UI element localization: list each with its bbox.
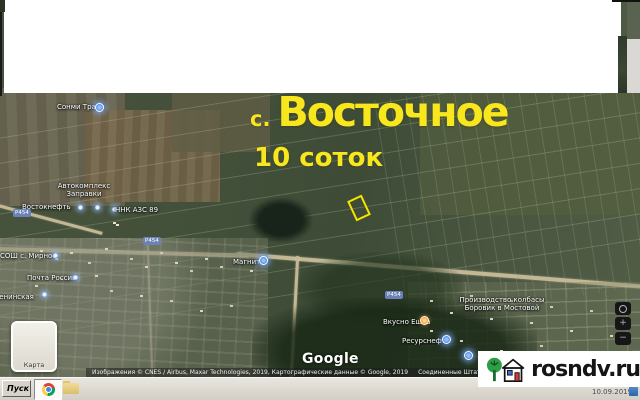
zoom-in-button[interactable]: +	[615, 317, 631, 330]
listing-title: с. Восточное	[250, 88, 508, 136]
poi-marker[interactable]	[420, 316, 429, 325]
title-text: Восточное	[277, 88, 507, 136]
title-prefix: с.	[250, 107, 270, 131]
map-type-label: Карта	[13, 361, 55, 369]
chrome-taskbar-button[interactable]	[34, 379, 62, 400]
poi-marker[interactable]	[42, 292, 47, 297]
edge-artifact	[618, 36, 627, 93]
map-label-avtokompleks: Автокомплекс Заправки	[52, 182, 116, 198]
map-label-leninskaya: Ленинская	[0, 293, 34, 301]
road-badge: Р454	[385, 291, 403, 299]
map-type-toggle[interactable]: Карта	[11, 321, 57, 372]
poi-marker[interactable]	[464, 351, 473, 360]
edge-artifact	[627, 0, 640, 93]
map-label-sosh-mirnoe: СОШ с. Мирное	[0, 252, 57, 260]
road-badge: Р454	[13, 209, 31, 217]
map-controls: + −	[615, 302, 631, 345]
watermark-text: rosndv.ru	[531, 357, 640, 382]
poi-marker[interactable]	[442, 335, 451, 344]
pegman-icon	[619, 305, 627, 313]
map-label-pochta: Почта России	[27, 274, 77, 282]
road-badge: Р454	[143, 237, 161, 245]
pegman-button[interactable]	[615, 302, 631, 315]
map-label-magnit: Магнит	[233, 258, 260, 266]
edge-artifact	[0, 0, 2, 96]
edge-artifact	[0, 0, 5, 12]
start-button-label: Пуск	[7, 384, 29, 393]
map-label-proizvodstvo: Производство колбасы Боровик в Мостовой	[452, 296, 552, 312]
folder-taskbar-button[interactable]	[63, 381, 80, 395]
map-label-nnk-azs: ННК АЗС 89	[115, 206, 158, 214]
poi-marker[interactable]	[73, 275, 78, 280]
poi-marker[interactable]	[78, 205, 83, 210]
poi-marker[interactable]	[259, 256, 268, 265]
start-button[interactable]: Пуск	[2, 380, 31, 397]
poi-marker[interactable]	[53, 253, 58, 258]
taskbar-clock[interactable]: 10.09.2019	[592, 388, 632, 396]
listing-subtitle: 10 соток	[254, 143, 383, 173]
rosndv-logo-icon	[486, 354, 527, 384]
google-logo[interactable]: Google	[302, 351, 359, 367]
chrome-icon	[42, 383, 55, 396]
poi-marker[interactable]	[95, 205, 100, 210]
poi-marker[interactable]	[95, 103, 104, 112]
rosndv-watermark: rosndv.ru	[478, 351, 640, 387]
map-dark-grove	[250, 198, 312, 242]
attribution-region: Соединенные Штаты	[418, 369, 485, 376]
zoom-out-button[interactable]: −	[615, 332, 631, 345]
listing-photo-blank-area	[4, 0, 621, 93]
edge-artifact	[612, 0, 640, 2]
attribution-imagery: Изображения © CNES / Airbus, Maxar Techn…	[92, 369, 408, 376]
